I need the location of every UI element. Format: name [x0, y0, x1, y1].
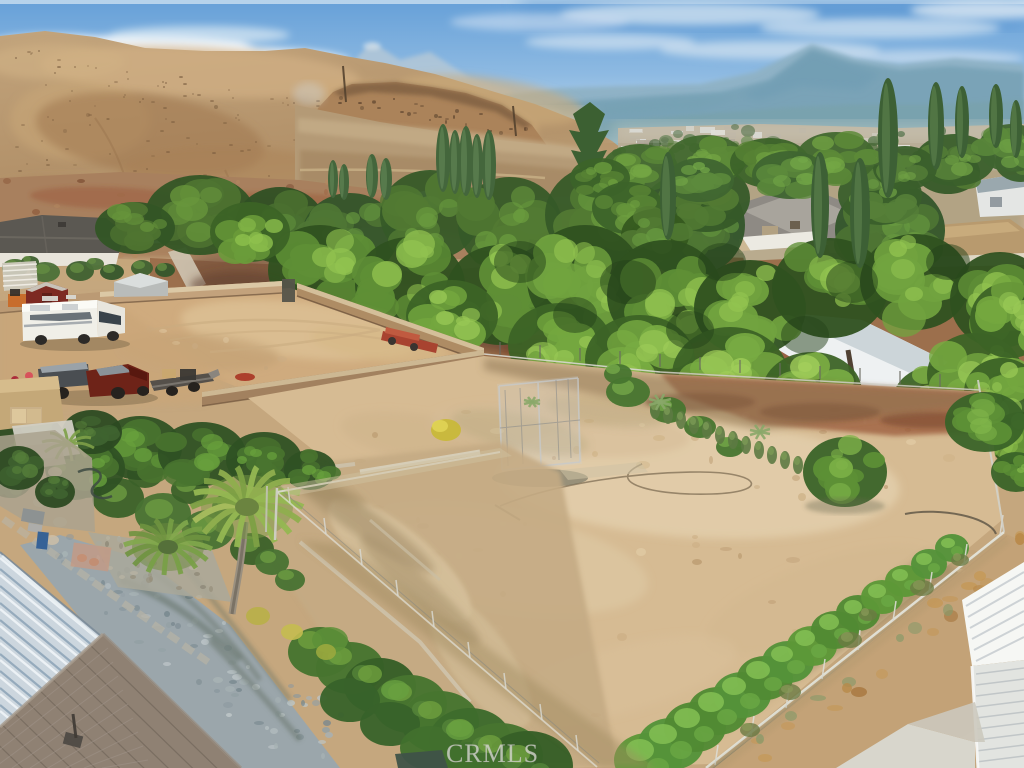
svg-text:CRMLS: CRMLS: [446, 739, 539, 768]
